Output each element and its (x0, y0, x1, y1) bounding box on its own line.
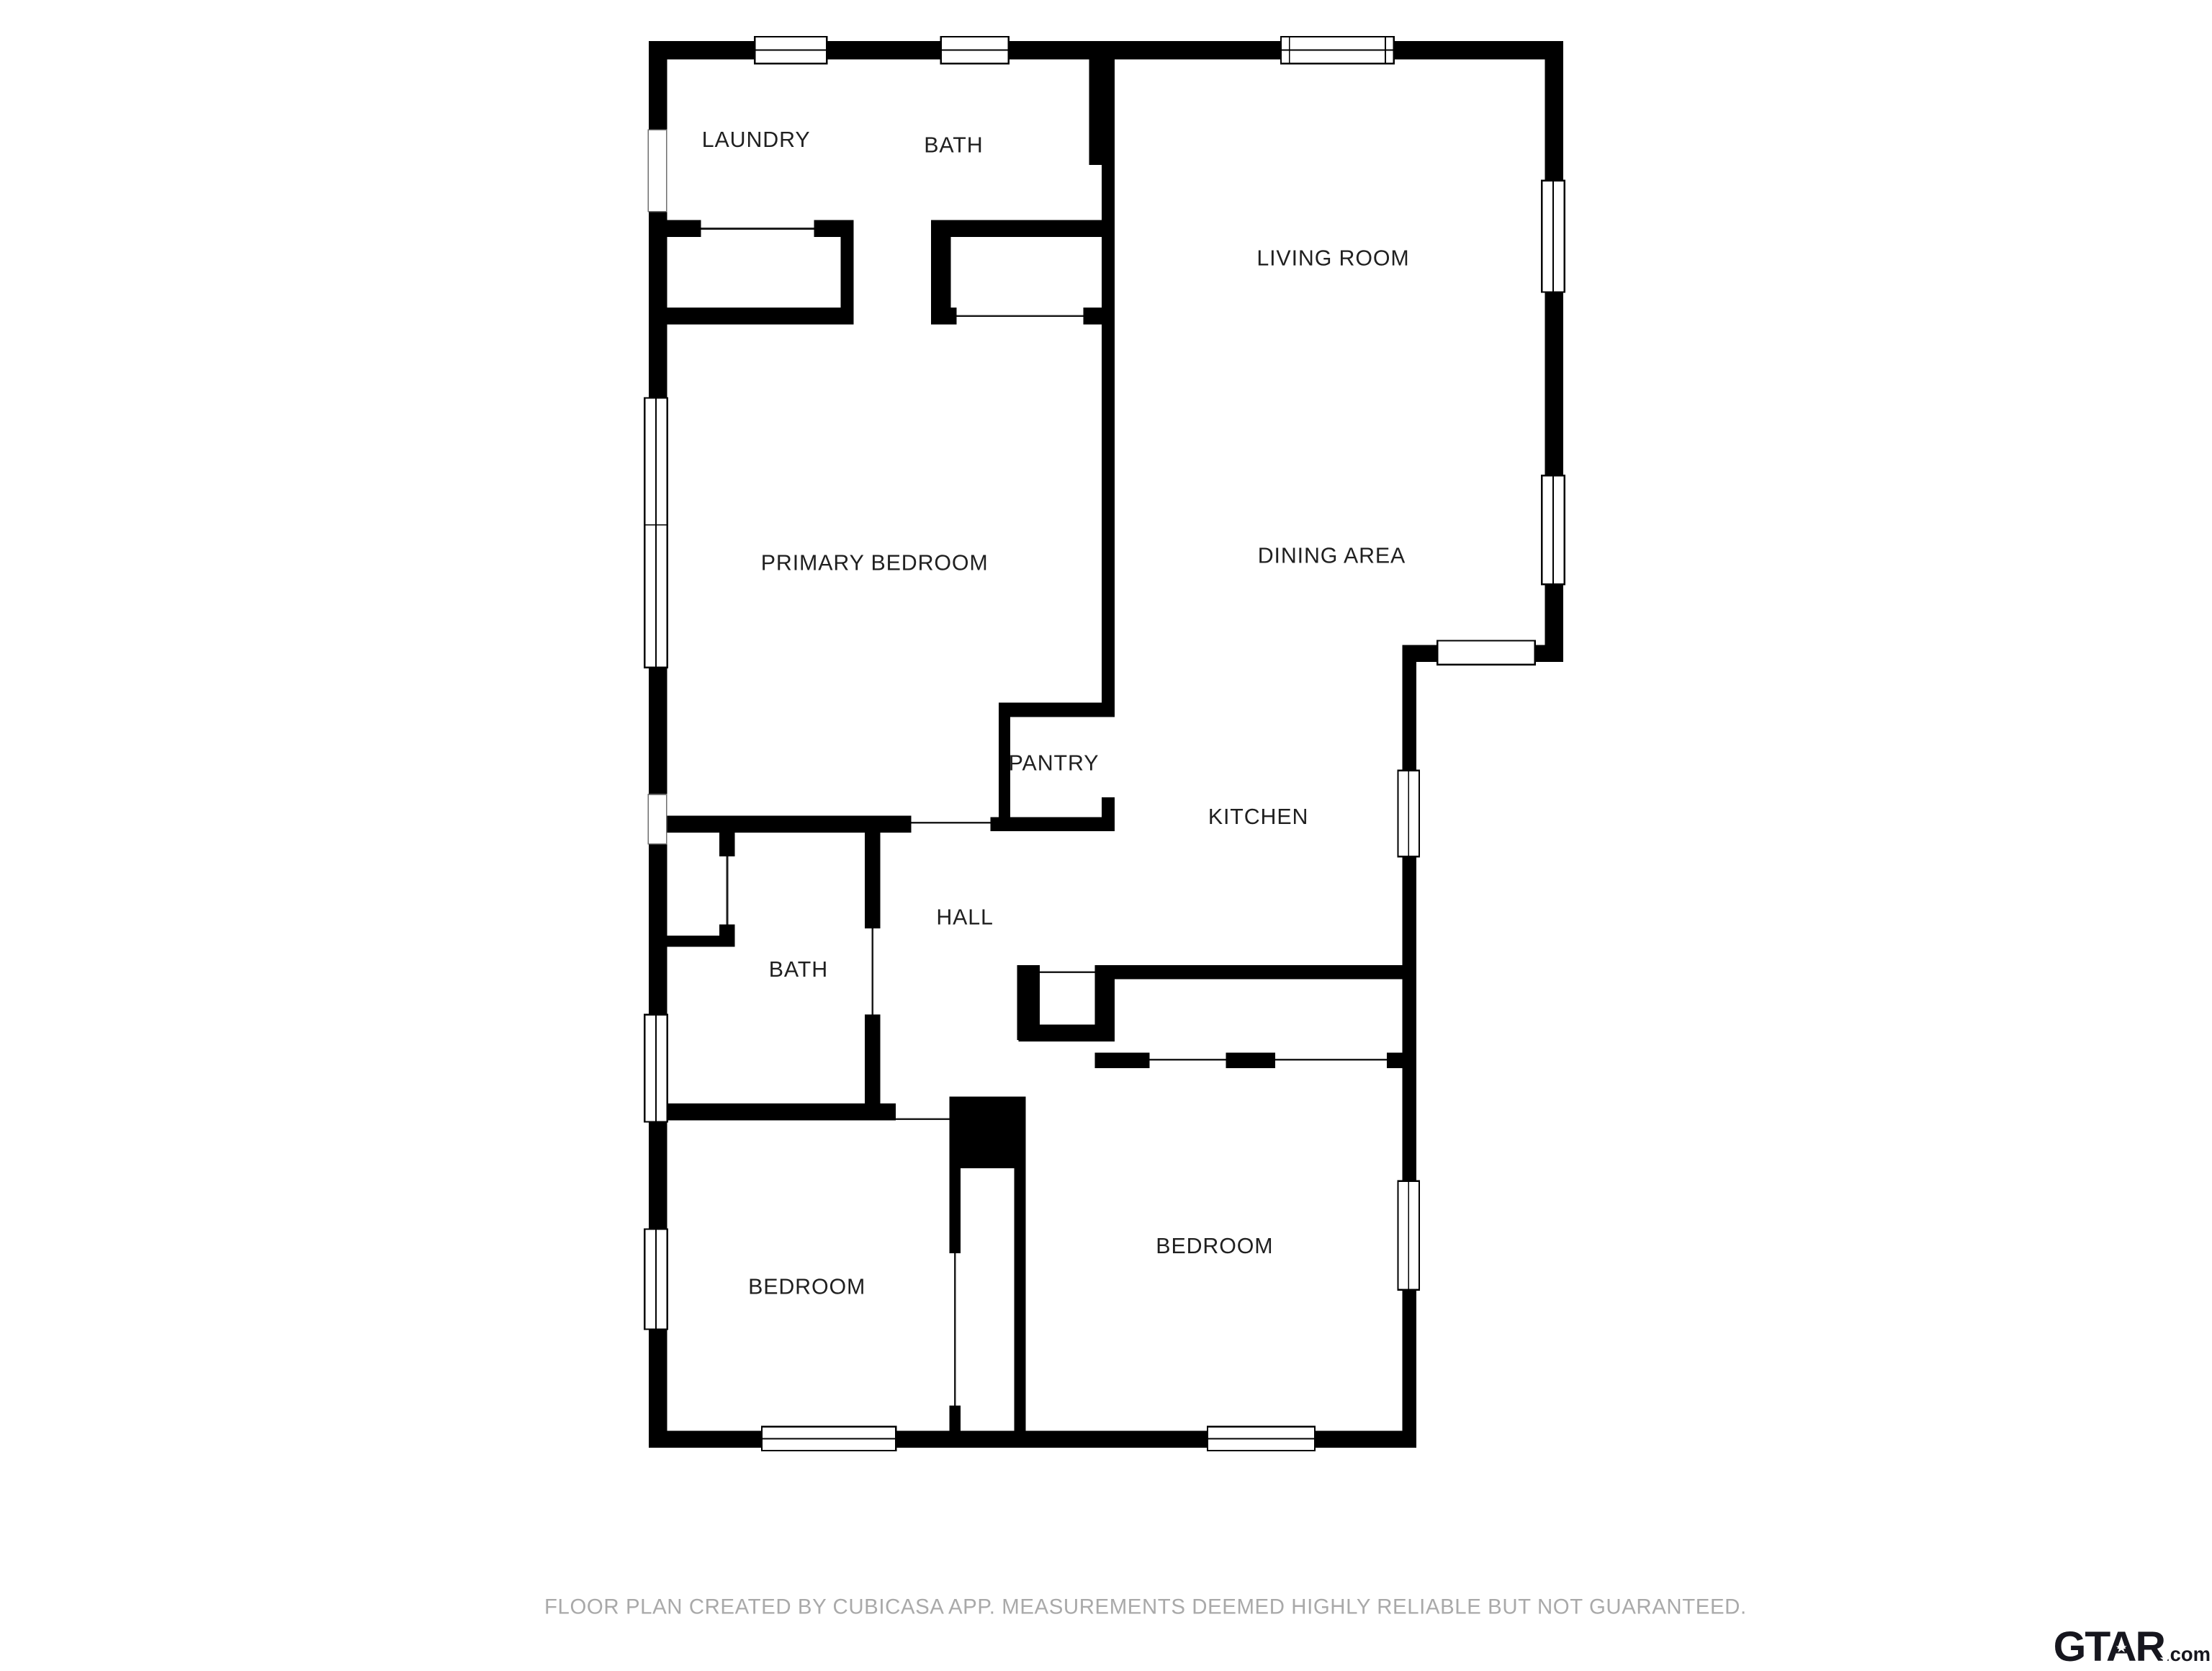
floor-plan (0, 0, 2212, 1659)
room-label-laundry: LAUNDRY (702, 128, 811, 153)
room-label-primary-bedroom: PRIMARY BEDROOM (761, 552, 989, 577)
room-label-dining-area: DINING AREA (1258, 545, 1406, 570)
window-bath-left (644, 1015, 667, 1122)
footer-disclaimer: FLOOR PLAN CREATED BY CUBICASA APP. MEAS… (544, 1595, 1747, 1619)
room-label-bedroom-right: BEDROOM (1156, 1235, 1273, 1260)
room-label-living-room: LIVING ROOM (1256, 247, 1409, 272)
window-bottom-right-bedroom (1208, 1427, 1315, 1451)
window-bottom-left-bedroom (762, 1427, 896, 1451)
window-top-laundry (755, 37, 827, 63)
window-kitchen-lower (1398, 1181, 1419, 1290)
opening-laundry-left (648, 130, 666, 212)
room-label-bath-upper: BATH (924, 134, 983, 159)
window-kitchen-upper (1398, 771, 1419, 857)
window-bedroom-left (644, 1229, 667, 1329)
window-primary-left (644, 398, 667, 667)
room-label-hall: HALL (936, 906, 994, 931)
window-dining-step (1437, 640, 1534, 664)
floor-plan-stage: LAUNDRY BATH LIVING ROOM DINING AREA PRI… (0, 0, 2212, 1659)
room-label-bedroom-left: BEDROOM (748, 1276, 866, 1301)
gtar-logo-text: GTA★R★ (2054, 1624, 2164, 1671)
room-label-bath-lower: BATH (769, 958, 828, 983)
gtar-logo: GTA★R★.com (2054, 1627, 2211, 1670)
floor-plan-page: { "floor_plan": { "wall_color": "#000000… (0, 0, 2212, 1659)
opening-primary-left (648, 794, 666, 844)
room-label-pantry: PANTRY (1009, 752, 1100, 777)
window-living-right-upper (1542, 181, 1564, 292)
gtar-logo-suffix: .com (2164, 1642, 2211, 1665)
window-living-right-lower (1542, 475, 1564, 584)
room-label-kitchen: KITCHEN (1208, 806, 1308, 831)
window-top-bath (941, 37, 1009, 63)
window-top-living (1281, 37, 1394, 63)
